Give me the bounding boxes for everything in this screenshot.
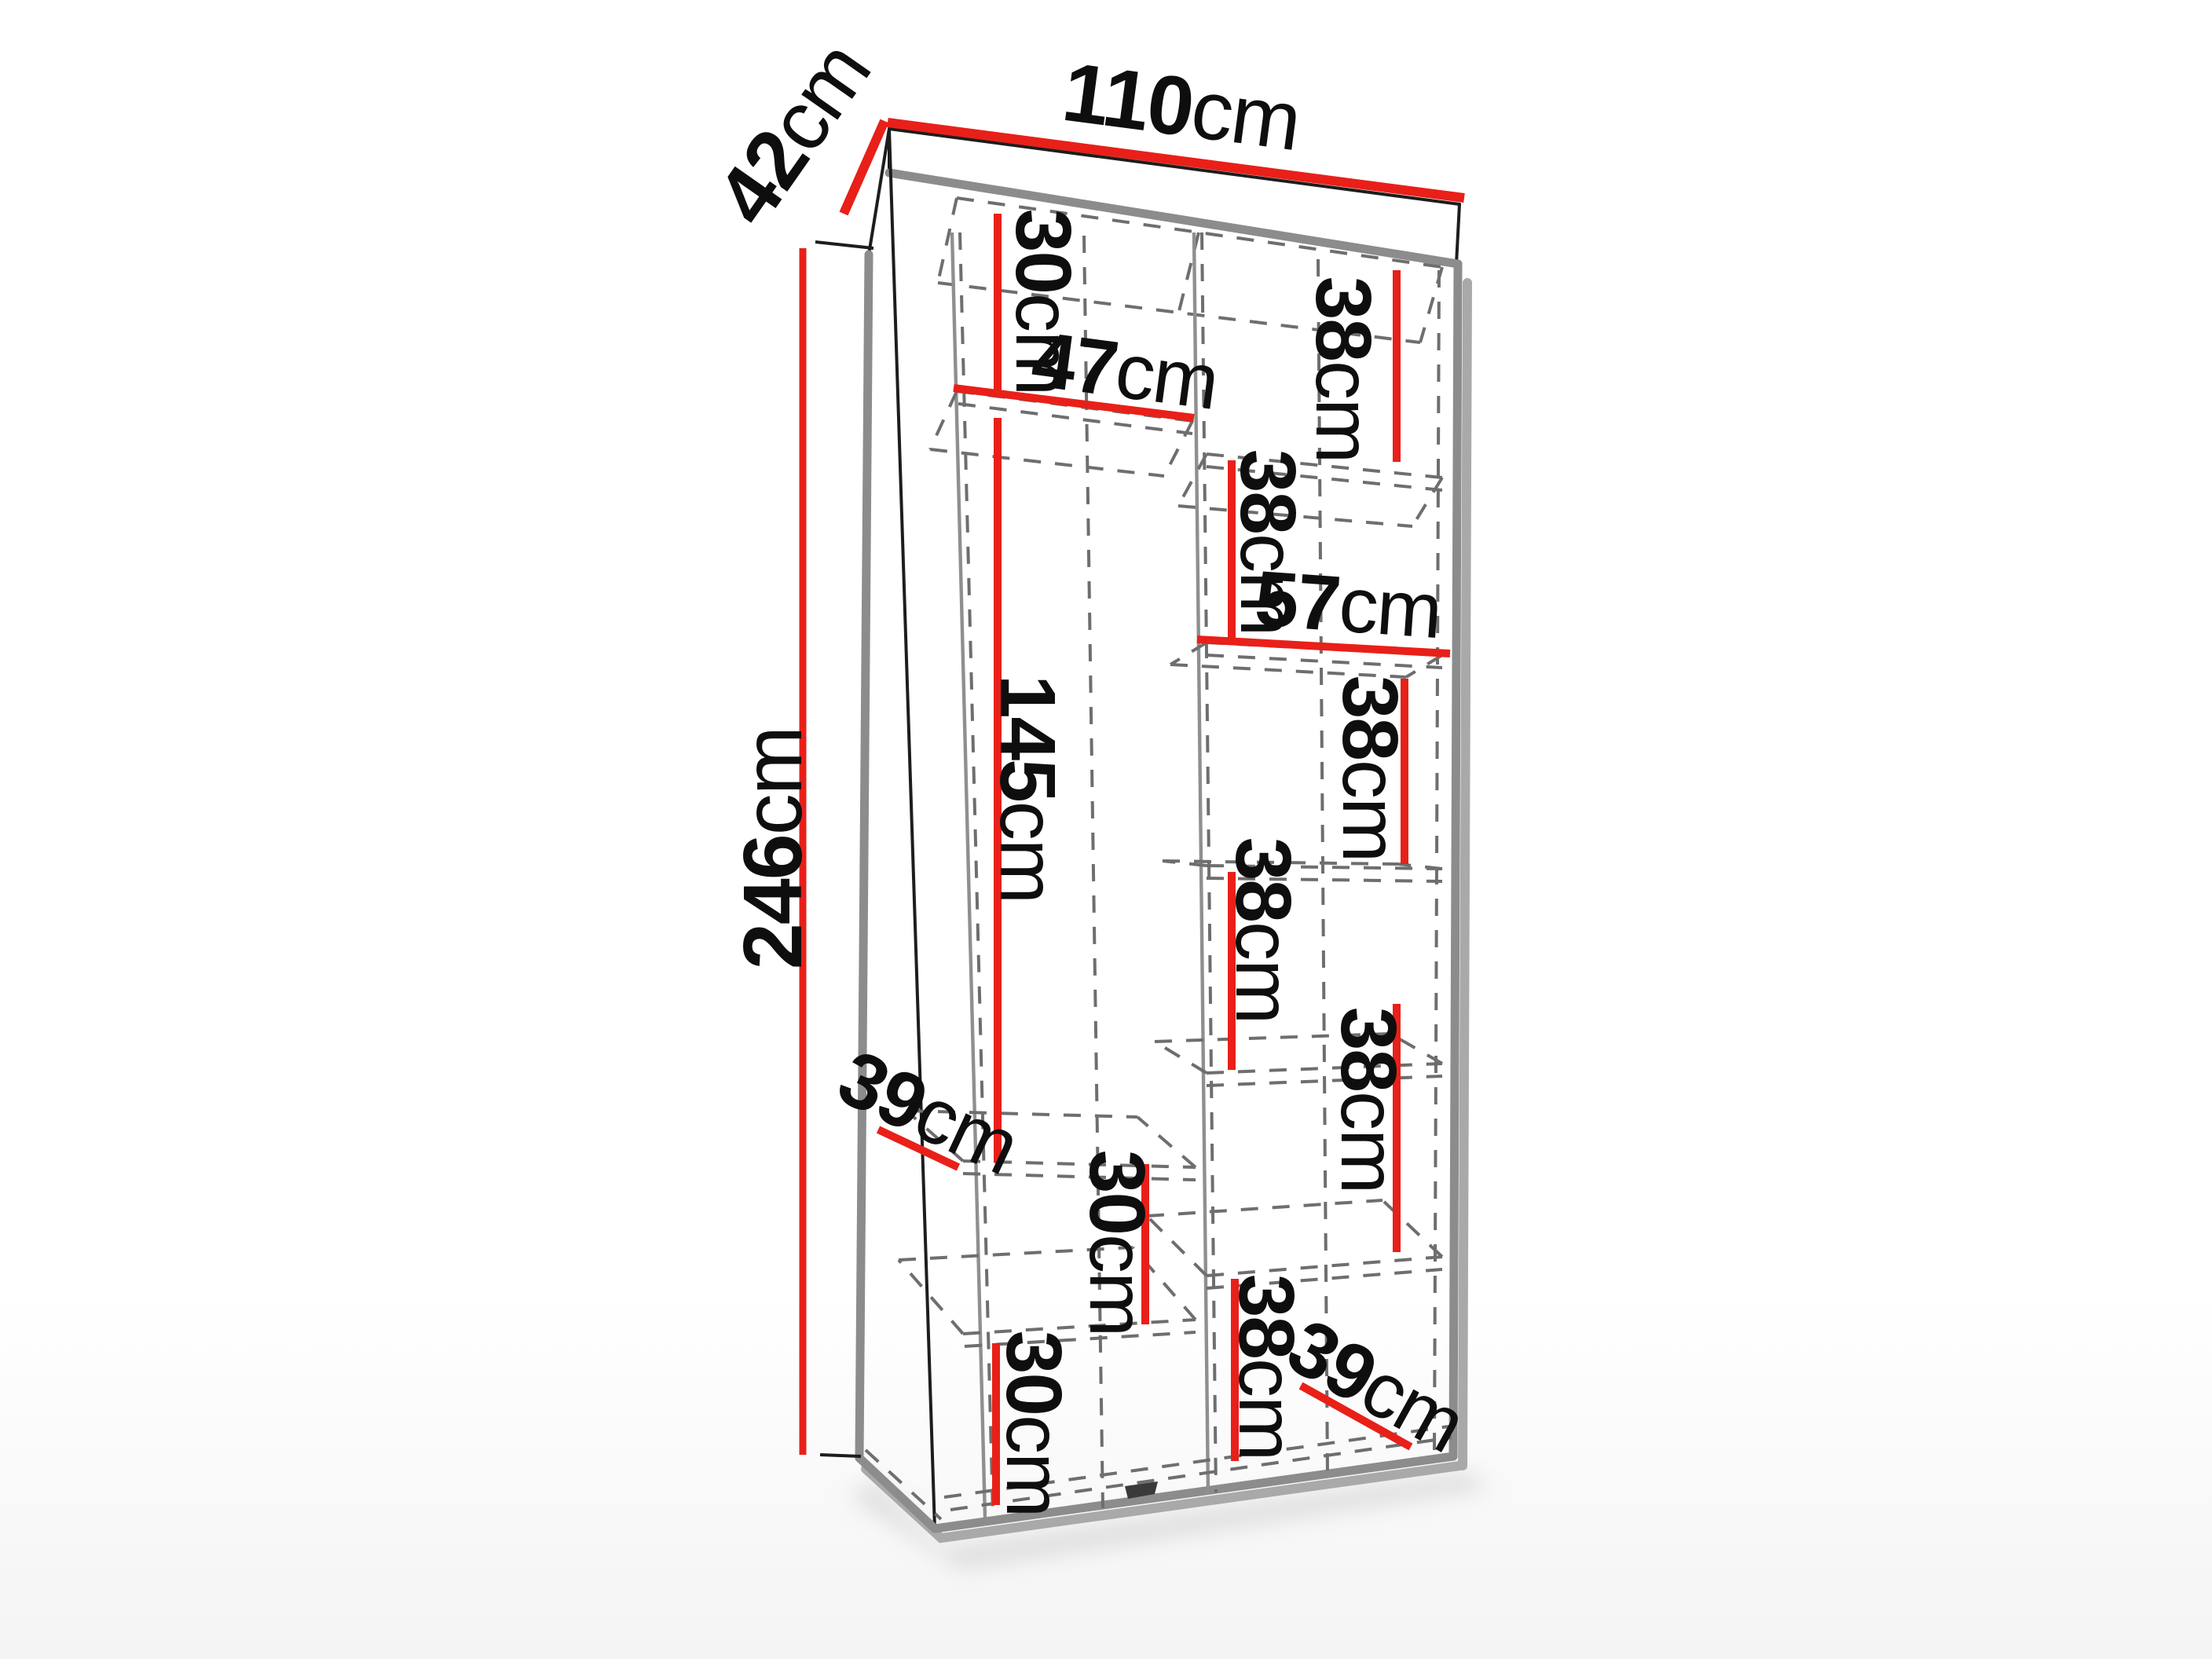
page-background: 110cm 42cm 246cm 30cm 47cm 145cm 39cm 30… xyxy=(0,0,2212,1659)
dim-left-mid-gap-label: 30cm xyxy=(1073,1150,1161,1336)
dim-left-tall-gap-label: 145cm xyxy=(983,675,1071,903)
dim-right-gap-4-label: 38cm xyxy=(1219,837,1307,1024)
dim-right-gap-3-label: 38cm xyxy=(1326,676,1414,862)
dim-left-shelf-width-label: 47cm xyxy=(1027,315,1222,427)
dim-height-label: 246cm xyxy=(727,727,819,969)
dim-depth-label: 42cm xyxy=(699,26,888,240)
floor-shadow xyxy=(848,1470,1489,1569)
dim-right-gap-5-label: 38cm xyxy=(1324,1007,1412,1193)
wardrobe-dimension-diagram: 110cm 42cm 246cm 30cm 47cm 145cm 39cm 30… xyxy=(0,0,2212,1659)
dim-right-shelf-width-label: 57cm xyxy=(1252,555,1444,655)
dim-right-gap-1-label: 38cm xyxy=(1299,276,1387,463)
dim-left-bottom-gap-label: 30cm xyxy=(990,1331,1078,1517)
